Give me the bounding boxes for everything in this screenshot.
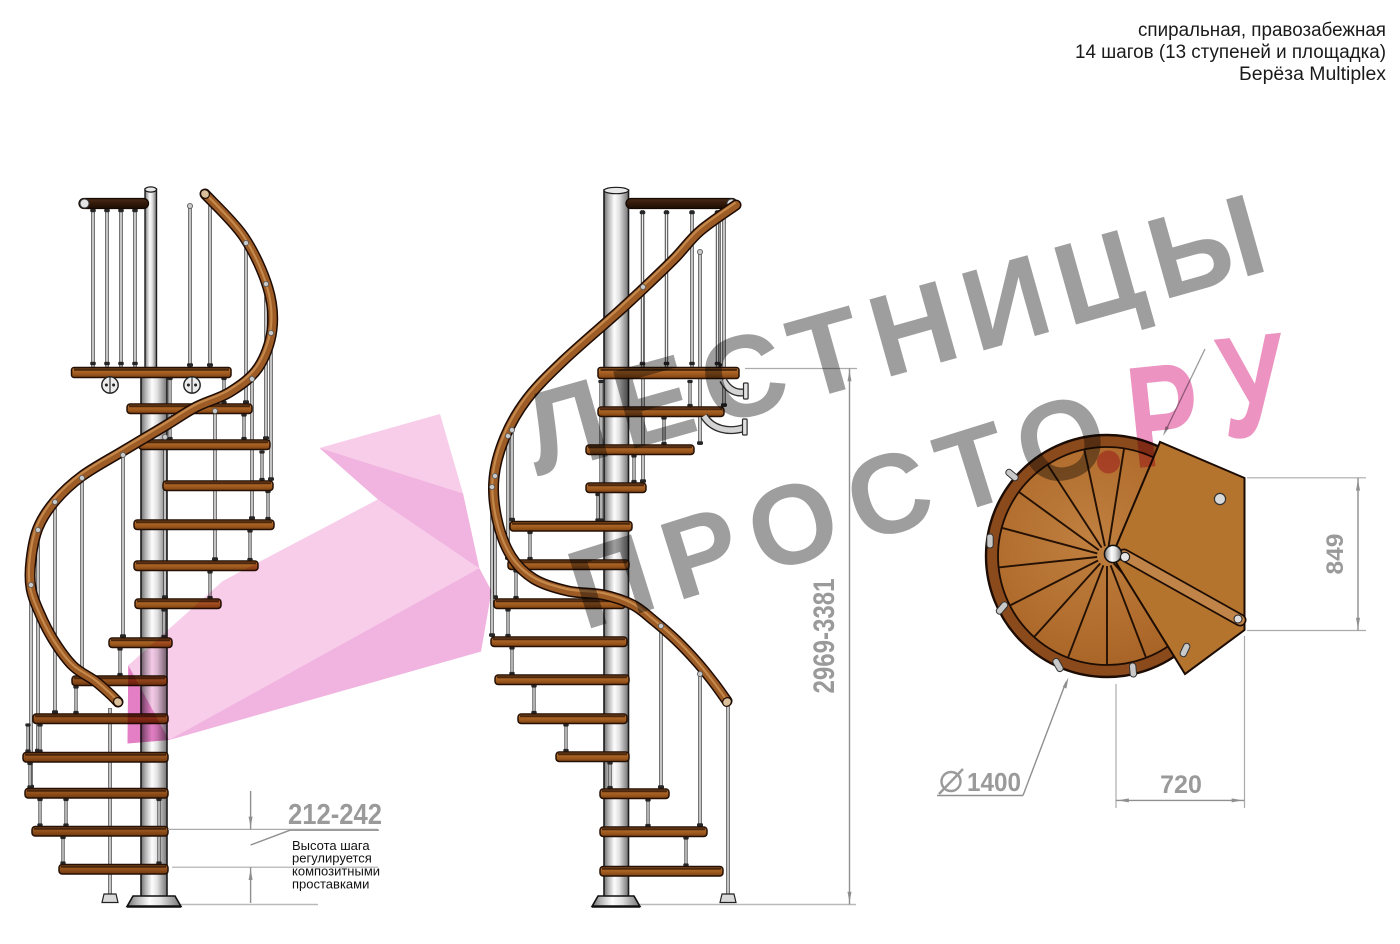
- svg-text:212-242: 212-242: [288, 799, 382, 831]
- svg-text:проставками: проставками: [292, 877, 369, 892]
- svg-text:14 шагов (13 ступеней и площад: 14 шагов (13 ступеней и площадка): [1075, 42, 1386, 63]
- svg-text:849: 849: [1322, 534, 1349, 575]
- svg-text:спиральная, правозабежная: спиральная, правозабежная: [1138, 20, 1386, 41]
- svg-text:Берёза Multiplex: Берёза Multiplex: [1239, 64, 1387, 85]
- svg-text:720: 720: [1160, 771, 1202, 799]
- svg-text:1400: 1400: [967, 767, 1021, 797]
- svg-text:2969-3381: 2969-3381: [808, 579, 841, 694]
